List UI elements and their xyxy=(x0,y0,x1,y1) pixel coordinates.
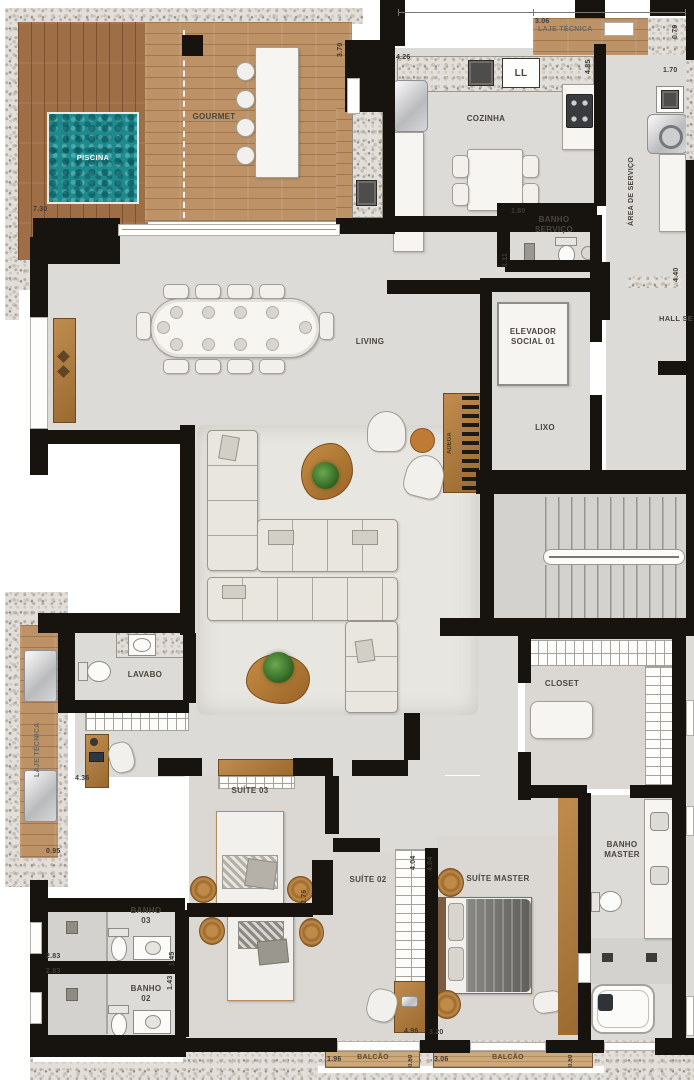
door-gap xyxy=(578,953,591,983)
wall xyxy=(186,1038,337,1052)
wall xyxy=(658,361,694,375)
room-label-closet: CLOSET xyxy=(536,679,588,689)
wall xyxy=(30,429,48,475)
room-label-banho03: BANHO 03 xyxy=(124,906,168,927)
floorplan: PISCINA LL xyxy=(0,0,694,1080)
wall xyxy=(75,700,189,713)
gourmet-island xyxy=(255,47,299,178)
wall xyxy=(598,262,610,320)
laptop-icon xyxy=(89,752,104,762)
sink-tag-box: LL xyxy=(502,58,540,88)
dim-laje-top-h: 0.79 xyxy=(672,17,681,39)
bed-pillow xyxy=(448,947,464,981)
kitchen-cabinet xyxy=(393,132,424,252)
room-label-laje-left: LAJE TÉCNICA xyxy=(33,708,46,792)
balcony-door xyxy=(337,1041,420,1051)
sliding-door xyxy=(118,224,340,236)
side-table xyxy=(410,428,435,453)
banho02-shower xyxy=(45,970,106,1037)
window xyxy=(30,317,48,429)
wardrobe xyxy=(218,759,295,776)
wall xyxy=(505,260,597,272)
dim-suite03-h: 2.76 xyxy=(301,882,310,904)
room-label-banho-master: BANHO MASTER xyxy=(594,840,650,861)
room-label-suite03: SUÍTE 03 xyxy=(218,786,282,796)
fridge xyxy=(393,80,428,132)
dim-laje-top: 3.06 xyxy=(535,18,549,25)
plant-icon xyxy=(312,462,339,489)
wall xyxy=(325,776,339,834)
window xyxy=(30,992,42,1024)
dim-suite02-w: 4.96 xyxy=(404,1028,418,1035)
laptop-icon xyxy=(401,996,418,1007)
stool xyxy=(236,90,255,109)
ac-unit-icon xyxy=(24,650,57,702)
neighbor-fixture xyxy=(686,700,694,736)
chair xyxy=(163,359,189,374)
chair xyxy=(522,155,539,178)
room-label-lixo: LIXO xyxy=(523,423,567,433)
bed-pillow xyxy=(448,903,464,941)
dim-hall-intimo: 0.95 xyxy=(46,848,60,855)
neighbor-sliver xyxy=(686,636,694,1050)
wall xyxy=(387,280,483,294)
cushion xyxy=(268,530,294,545)
wall xyxy=(158,758,202,776)
bed-fold xyxy=(257,938,289,965)
wardrobe-panel xyxy=(558,795,580,1035)
toilet-icon xyxy=(111,936,127,961)
window xyxy=(30,922,42,954)
corredor-floor xyxy=(480,636,518,796)
dim-banho02-h: 1.43 xyxy=(167,968,176,990)
servico-counter xyxy=(659,154,686,232)
place-setting xyxy=(234,338,247,351)
kitchen-table xyxy=(467,149,523,211)
shower-valve xyxy=(646,953,657,962)
wall xyxy=(518,623,531,683)
room-label-suite-master: SUÍTE MASTER xyxy=(458,874,538,884)
dim-area-servico-h: 4.40 xyxy=(673,256,682,282)
place-setting xyxy=(266,338,279,351)
chair xyxy=(319,312,334,340)
dimension-tick xyxy=(685,9,686,16)
dim-banho-servico-h: 1.11 xyxy=(502,243,511,267)
basin xyxy=(145,1015,161,1029)
room-label-cozinha: COZINHA xyxy=(452,114,520,124)
wall xyxy=(575,0,605,18)
basin xyxy=(145,941,161,955)
chair xyxy=(452,183,469,206)
lavabo-basin xyxy=(133,638,151,652)
wall xyxy=(333,838,380,852)
wall xyxy=(590,395,602,472)
dimension-line xyxy=(398,12,686,13)
place-setting xyxy=(266,306,279,319)
dim-suite02-h: 4.04 xyxy=(410,846,419,870)
ottoman xyxy=(530,701,593,739)
chair xyxy=(136,312,151,340)
dim-cozinha: 4.26 xyxy=(396,54,410,61)
wall xyxy=(175,910,189,1037)
stool xyxy=(236,62,255,81)
place-setting xyxy=(299,321,312,334)
dim-terraco: 7.30 xyxy=(33,206,47,213)
chair xyxy=(195,359,221,374)
place-setting xyxy=(170,338,183,351)
wall xyxy=(352,760,408,776)
wardrobe xyxy=(528,640,673,666)
terrace-border xyxy=(5,8,19,260)
gourmet-floor xyxy=(336,108,353,234)
room-label-balcao2: BALCÃO xyxy=(466,1053,550,1062)
dim-tanque: 1.70 xyxy=(663,67,677,74)
toilet-icon xyxy=(87,661,111,682)
shower-valve xyxy=(602,953,613,962)
shower-valve xyxy=(66,988,78,1001)
toilet-icon xyxy=(111,1013,127,1037)
pool-label: PISCINA xyxy=(77,153,110,163)
wall xyxy=(38,613,190,633)
bed-pillow xyxy=(244,858,278,890)
room-label-balcao1: BALCÃO xyxy=(336,1053,410,1062)
bath-pillow xyxy=(598,994,613,1011)
wall xyxy=(187,903,313,917)
wall xyxy=(48,430,190,444)
dim-balcao2-w: 3.06 xyxy=(434,1056,448,1063)
room-label-gourmet: GOURMET xyxy=(178,112,250,122)
wall xyxy=(312,860,333,915)
room-label-banho-servico: BANHO SERVIÇO xyxy=(518,215,590,236)
washing-machine-icon xyxy=(647,114,688,154)
desk xyxy=(394,981,426,1033)
wardrobe xyxy=(645,666,675,787)
dimension-tick xyxy=(398,9,399,16)
dim-gourmet: 3.70 xyxy=(337,33,346,57)
place-setting xyxy=(234,306,247,319)
dim-banho03-h: 1.45 xyxy=(169,944,178,966)
wall xyxy=(630,785,683,798)
kitchen-sink xyxy=(468,60,494,86)
terrace-dashed-line xyxy=(183,30,185,218)
room-label-banho02: BANHO 02 xyxy=(124,984,168,1005)
window xyxy=(347,78,360,114)
wall xyxy=(480,278,598,292)
wall xyxy=(383,108,395,220)
chair xyxy=(259,284,285,299)
dim-master-w: 3.20 xyxy=(429,1029,443,1036)
wall xyxy=(425,848,438,1040)
dim-balcao1-w: 1.96 xyxy=(327,1056,341,1063)
sink-tag-label: LL xyxy=(515,67,528,80)
balcony-door xyxy=(604,1042,656,1051)
round-rug xyxy=(199,917,225,945)
cooktop-icon xyxy=(566,94,593,128)
room-label-elevador: ELEVADOR SOCIAL 01 xyxy=(500,327,566,348)
wall-edge xyxy=(686,60,694,160)
curb xyxy=(33,1057,183,1062)
place-setting xyxy=(202,306,215,319)
wall xyxy=(578,793,591,953)
shower-divider xyxy=(106,970,108,1034)
tanque-basin xyxy=(661,90,679,109)
room-label-hall-servico: HALL SE xyxy=(659,314,694,324)
pillar xyxy=(182,35,203,56)
void xyxy=(30,444,182,614)
place-setting xyxy=(170,306,183,319)
wall xyxy=(594,44,606,206)
chair xyxy=(227,284,253,299)
wall xyxy=(336,218,395,234)
neighbor-fixture xyxy=(686,996,694,1036)
place-setting xyxy=(202,338,215,351)
wall xyxy=(518,623,683,639)
wall xyxy=(578,983,591,1040)
dimension-tick xyxy=(533,9,534,16)
dim-cozinha-h: 4.85 xyxy=(585,50,594,74)
dim-balcao1-d: 0.60 xyxy=(408,1051,416,1067)
pool: PISCINA xyxy=(47,112,139,204)
wall xyxy=(404,713,420,760)
place-setting xyxy=(157,321,170,334)
stair-rail-line xyxy=(549,556,679,558)
bed-blanket xyxy=(466,899,531,992)
room-label-area-servico: ÁREA DE SERVIÇO xyxy=(627,148,639,234)
cushion xyxy=(355,639,376,663)
chair xyxy=(227,359,253,374)
wall xyxy=(686,494,694,618)
plant-icon xyxy=(263,652,294,683)
sofa xyxy=(257,519,398,572)
terrace-border xyxy=(5,258,19,320)
cushion xyxy=(222,585,246,599)
wall xyxy=(183,633,196,703)
toilet-icon xyxy=(599,891,622,912)
stool xyxy=(236,146,255,165)
wall xyxy=(30,237,48,319)
wall xyxy=(672,618,686,1050)
wall xyxy=(30,1035,186,1057)
room-label-suite02: SUÍTE 02 xyxy=(338,875,398,885)
wall xyxy=(686,0,694,60)
wine-rack-label: ADEGA xyxy=(447,415,457,471)
desk-decor xyxy=(90,738,98,746)
wall xyxy=(480,494,494,620)
wall xyxy=(58,633,75,713)
shower-valve xyxy=(66,921,78,934)
chair xyxy=(452,155,469,178)
gourmet-sink xyxy=(356,180,377,206)
chair xyxy=(259,359,285,374)
stair-treads xyxy=(545,565,683,618)
dim-master-h: 4.04 xyxy=(427,847,436,871)
cushion xyxy=(352,530,378,545)
armchair xyxy=(367,411,406,452)
room-label-lavabo: LAVABO xyxy=(112,670,178,680)
wall xyxy=(48,961,177,974)
dim-banho02-w: 2.83 xyxy=(46,968,60,975)
wall xyxy=(476,470,694,494)
dim-balcao2-d: 0.60 xyxy=(568,1051,576,1067)
room-label-living: LIVING xyxy=(342,337,398,347)
dim-banho-servico: 1.80 xyxy=(511,208,525,215)
neighbor-fixture xyxy=(686,806,694,836)
dim-suite03-w: 4.36 xyxy=(75,775,89,782)
room-label-laje-top: LAJE TÉCNICA xyxy=(538,25,630,34)
dim-banho03-w: 2.83 xyxy=(46,953,60,960)
sofa xyxy=(207,577,398,621)
sofa xyxy=(345,621,398,713)
round-rug xyxy=(190,876,217,903)
balcony-door xyxy=(470,1042,546,1051)
wall xyxy=(293,758,333,776)
sink-icon xyxy=(650,812,669,831)
wall xyxy=(420,1040,470,1053)
wall xyxy=(525,785,587,798)
stair-treads xyxy=(545,497,683,552)
chair xyxy=(195,284,221,299)
sliding-door-rail xyxy=(122,229,336,230)
wall xyxy=(480,278,492,470)
round-rug xyxy=(299,918,324,947)
sink-icon xyxy=(650,866,669,885)
wall xyxy=(180,425,195,635)
chair xyxy=(163,284,189,299)
